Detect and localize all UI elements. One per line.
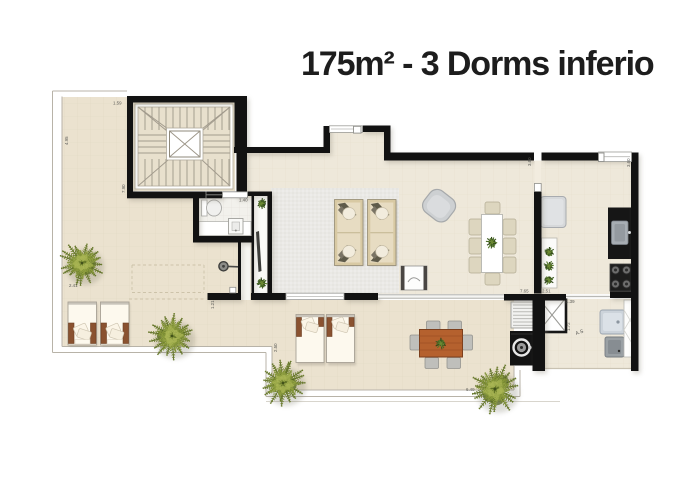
svg-text:2.50: 2.50	[273, 343, 278, 352]
svg-text:3.60: 3.60	[626, 158, 631, 167]
svg-text:6.49: 6.49	[466, 387, 475, 392]
svg-text:1.40: 1.40	[239, 198, 248, 203]
svg-text:1.39: 1.39	[566, 299, 575, 304]
svg-text:1.21: 1.21	[210, 300, 215, 309]
svg-text:4.95: 4.95	[64, 136, 69, 145]
svg-text:1.72: 1.72	[566, 322, 571, 331]
svg-text:3.60: 3.60	[527, 157, 532, 166]
svg-text:7.90: 7.90	[121, 184, 126, 193]
svg-text:2.41: 2.41	[69, 283, 78, 288]
svg-text:1.59: 1.59	[113, 101, 122, 106]
svg-text:2.51: 2.51	[542, 289, 551, 294]
svg-text:7.65: 7.65	[520, 289, 529, 294]
